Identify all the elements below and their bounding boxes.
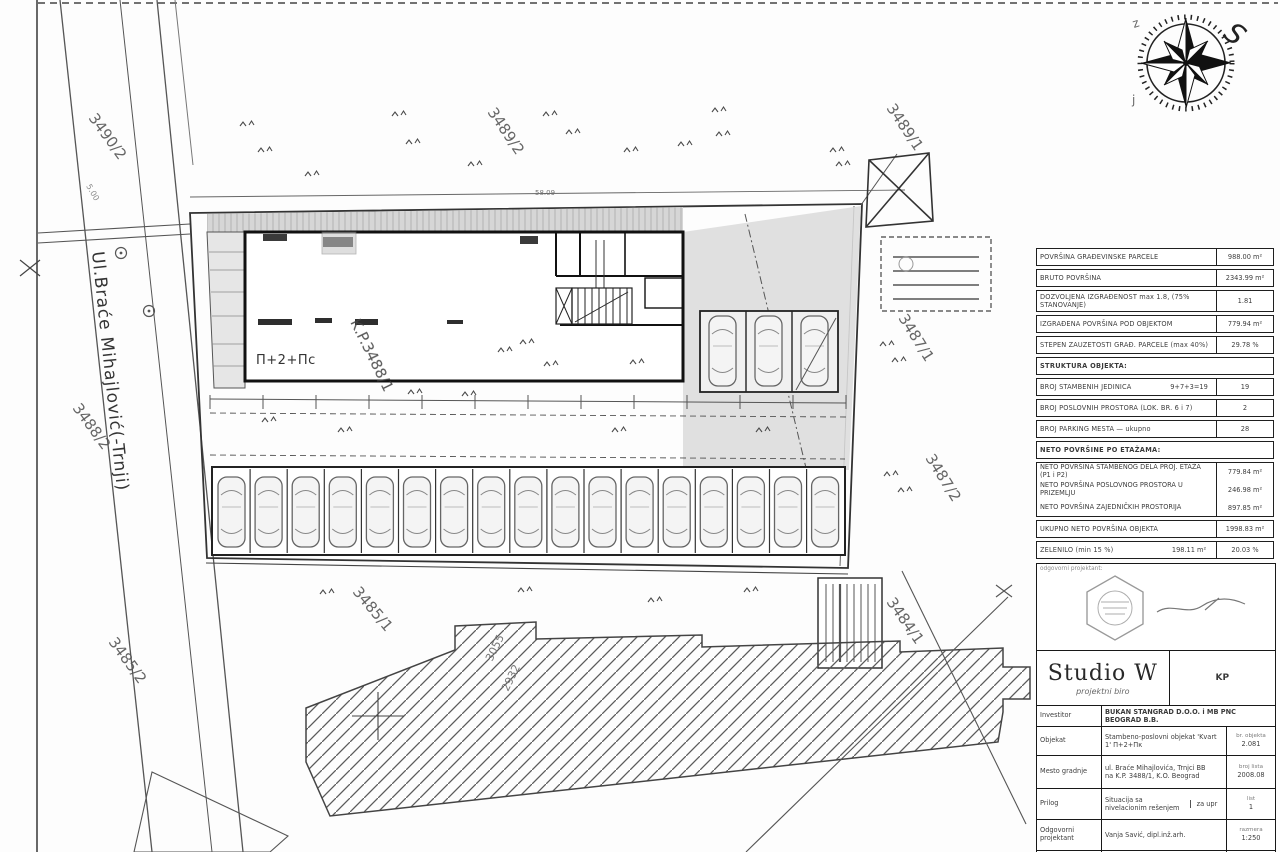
row-label: NETO POVRŠINA ZAJEDNIČKIH PROSTORIJA xyxy=(1037,499,1216,516)
existing-building: 3055 2932 xyxy=(306,622,1030,816)
row-value: 20.03 % xyxy=(1216,542,1273,558)
table-row: BROJ POSLOVNIH PROSTORA (LOK. BR. 6 i 7)… xyxy=(1036,399,1274,417)
grass-icon xyxy=(830,147,844,152)
table-row: IZGRAĐENA POVRŠINA POD OBJEKTOM 779.94 m… xyxy=(1036,315,1274,333)
location-line-2: na K.P. 3488/1, K.O. Beograd xyxy=(1105,772,1223,780)
table-row: BRUTO POVRŠINA 2343.99 m² xyxy=(1036,269,1274,287)
compass-rose: S z j xyxy=(1131,16,1252,109)
grass-icon xyxy=(880,341,894,346)
table-section-header: STRUKTURA OBJEKTA: xyxy=(1036,357,1274,375)
field-label: Investitor xyxy=(1037,706,1102,726)
table-row: NETO POVRŠINA POSLOVNOG PROSTORA U PRIZE… xyxy=(1037,481,1273,499)
row-detail: 9+7+3=19 xyxy=(1162,379,1216,395)
row-label: BROJ POSLOVNIH PROSTORA (LOK. BR. 6 i 7) xyxy=(1037,400,1216,416)
table-section-header: NETO POVRŠINE PO ETAŽAMA: xyxy=(1036,441,1274,459)
side-strip xyxy=(207,232,245,388)
row-value: 2343.99 m² xyxy=(1216,270,1273,286)
studio-row: Studio W projektni biro KP xyxy=(1037,650,1275,705)
studio-subtitle: projektni biro xyxy=(1076,687,1130,696)
row-label: IZGRAĐENA POVRŠINA POD OBJEKTOM xyxy=(1037,316,1216,332)
grass-icon xyxy=(898,487,912,492)
table-row: DOZVOLJENA IZGRAĐENOST max 1.8, (75% STA… xyxy=(1036,290,1274,312)
row-value: 779.84 m² xyxy=(1216,463,1273,481)
parking-car xyxy=(663,477,690,547)
parcel-label: 3485/1 xyxy=(349,583,397,635)
location-row: Mesto gradnje ul. Braće Mihajlovića, Trn… xyxy=(1037,755,1275,788)
info-key: razmera xyxy=(1239,827,1262,834)
parking-car xyxy=(737,477,764,547)
field-label: Prilog xyxy=(1037,789,1102,819)
row-value: 246.98 m² xyxy=(1216,481,1273,499)
drawing-line-2: nivelacionim rešenjem xyxy=(1105,804,1190,812)
parcel-label: 3489/2 xyxy=(484,104,528,158)
drawing-subcell: za upr xyxy=(1190,800,1223,808)
info-key: list xyxy=(1247,796,1255,803)
row-label: BROJ PARKING MESTA — ukupno xyxy=(1037,421,1216,437)
parking-car xyxy=(366,477,393,547)
field-info: list 1 xyxy=(1226,789,1275,819)
grass-icon xyxy=(712,107,726,112)
title-block: odgovorni projektant: Studio W projektni… xyxy=(1036,563,1276,852)
manhole-icon xyxy=(144,306,155,317)
row-value: 29.78 % xyxy=(1216,337,1273,353)
field-value: ul. Braće Mihajlovića, Trnjci BB na K.P.… xyxy=(1102,756,1226,788)
table-row: UKUPNO NETO POVRŠINA OBJEKTA 1998.83 m² xyxy=(1036,520,1274,538)
row-label: BROJ STAMBENIH JEDINICA xyxy=(1037,379,1162,395)
utility-box xyxy=(881,237,991,311)
field-value: BUKAN STANGRAD D.O.O. i MB PNC BEOGRAD B… xyxy=(1102,706,1275,726)
info-key: br. objekta xyxy=(1236,733,1266,740)
signature-icon xyxy=(1157,598,1245,612)
row-label: ZELENILO (min 15 %) xyxy=(1037,542,1162,558)
garage-car xyxy=(801,316,828,386)
street: Ul.Braće Mihajlović(-Trnji) 5.00 xyxy=(20,0,288,852)
field-info: br. objekta 2.081 xyxy=(1226,727,1275,755)
row-label: NETO POVRŠINE PO ETAŽAMA: xyxy=(1037,442,1273,458)
table-row-group: NETO POVRŠINA STAMBENOG DELA PROJ. ETAŽA… xyxy=(1036,462,1274,517)
table-row: BROJ STAMBENIH JEDINICA 9+7+3=19 19 xyxy=(1036,378,1274,396)
compass-south-label: j xyxy=(1131,93,1135,107)
grass-icon xyxy=(305,171,319,176)
canopy xyxy=(322,232,356,254)
row-value: 28 xyxy=(1216,421,1273,437)
info-key: broj lista xyxy=(1239,764,1263,771)
parcel-label: 3487/1 xyxy=(895,311,938,365)
table-row: BROJ PARKING MESTA — ukupno 28 xyxy=(1036,420,1274,438)
garage-car xyxy=(755,316,782,386)
parking-car xyxy=(218,477,245,547)
object-row: Objekat Stambeno-poslovni objekat 'Kvart… xyxy=(1037,726,1275,755)
grass-icon xyxy=(262,417,276,422)
field-value: Situacija sa nivelacionim rešenjem za up… xyxy=(1102,789,1226,819)
grass-icon xyxy=(678,141,692,146)
grass-icon xyxy=(468,161,482,166)
garage-stalls xyxy=(700,311,838,392)
row-label: UKUPNO NETO POVRŠINA OBJEKTA xyxy=(1037,521,1216,537)
row-value: 988.00 m² xyxy=(1216,249,1273,265)
parking-car xyxy=(589,477,616,547)
grass-icon xyxy=(892,357,906,362)
parcel-label: 3490/2 xyxy=(85,110,131,163)
quantities-table: POVRŠINA GRAĐEVINSKE PARCELE 988.00 m² B… xyxy=(1036,248,1274,562)
parking-car xyxy=(441,477,468,547)
table-row: STEPEN ZAUZETOSTI GRAĐ. PARCELE (max 40%… xyxy=(1036,336,1274,354)
grass-icon xyxy=(884,471,898,476)
parcel-label: 3485/2 xyxy=(105,634,151,687)
field-label: Mesto gradnje xyxy=(1037,756,1102,788)
parking-car xyxy=(812,477,839,547)
grass-icon xyxy=(338,427,352,432)
grass-icon xyxy=(716,131,730,136)
parking-car xyxy=(478,477,505,547)
row-label: STEPEN ZAUZETOSTI GRAĐ. PARCELE (max 40%… xyxy=(1037,337,1216,353)
field-info: razmera 1:250 xyxy=(1226,820,1275,850)
field-value: Vanja Savić, dipl.inž.arh. xyxy=(1102,820,1226,850)
compass-north-label: S xyxy=(1218,16,1252,53)
scribble-icon xyxy=(899,257,913,271)
grass-icon xyxy=(543,111,557,116)
grass-icon xyxy=(258,147,272,152)
grass-icon xyxy=(462,391,476,396)
top-dimension: 58.09 xyxy=(535,189,555,197)
grass-icon xyxy=(648,597,662,602)
grass-icon xyxy=(240,121,254,126)
row-value: 779.94 m² xyxy=(1216,316,1273,332)
entrance-mark xyxy=(263,234,287,241)
row-label: STRUKTURA OBJEKTA: xyxy=(1037,358,1273,374)
street-label: Ul.Braće Mihajlović(-Trnji) xyxy=(87,250,132,492)
field-label: Odgovorni projektant xyxy=(1037,820,1102,850)
parking-car xyxy=(329,477,356,547)
grass-icon xyxy=(566,129,580,134)
parking-car xyxy=(552,477,579,547)
grass-icon xyxy=(408,389,422,394)
building-storeys-label: П+2+Пс xyxy=(256,353,316,368)
entrance-mark xyxy=(520,236,538,244)
row-value: 2 xyxy=(1216,400,1273,416)
field-label: Objekat xyxy=(1037,727,1102,755)
row-label: BRUTO POVRŠINA xyxy=(1037,270,1216,286)
table-row: NETO POVRŠINA STAMBENOG DELA PROJ. ETAŽA… xyxy=(1037,463,1273,481)
info-value: 2008.08 xyxy=(1237,771,1264,780)
drawing-line-1: Situacija sa xyxy=(1105,796,1190,804)
parking-car xyxy=(700,477,727,547)
grass-icon xyxy=(612,427,626,432)
grass-icon xyxy=(406,139,420,144)
street-dimension: 5.00 xyxy=(84,183,101,203)
grass-icon xyxy=(518,587,532,592)
row-label: POVRŠINA GRAĐEVINSKE PARCELE xyxy=(1037,249,1216,265)
parking-car xyxy=(626,477,653,547)
parking-car xyxy=(292,477,319,547)
parcel-label: 3484/1 xyxy=(883,594,928,648)
grass-icon xyxy=(320,589,334,594)
parking-car xyxy=(404,477,431,547)
parking-car xyxy=(775,477,802,547)
row-label: DOZVOLJENA IZGRAĐENOST max 1.8, (75% STA… xyxy=(1037,291,1216,311)
studio-code: KP xyxy=(1169,651,1275,705)
row-label: NETO POVRŠINA POSLOVNOG PROSTORA U PRIZE… xyxy=(1037,481,1216,499)
studio-cell: Studio W projektni biro xyxy=(1037,651,1169,705)
location-line-1: ul. Braće Mihajlovića, Trnjci BB xyxy=(1105,764,1223,772)
grass-icon xyxy=(744,587,758,592)
field-info: broj lista 2008.08 xyxy=(1226,756,1275,788)
info-value: 2.081 xyxy=(1242,740,1261,749)
grass-icon xyxy=(836,161,850,166)
table-row: NETO POVRŠINA ZAJEDNIČKIH PROSTORIJA 897… xyxy=(1037,499,1273,516)
row-value: 1.81 xyxy=(1216,291,1273,311)
parcel-label: 3487/2 xyxy=(922,451,965,505)
row-detail: 198.11 m² xyxy=(1162,542,1216,558)
manhole-icon xyxy=(116,248,127,259)
row-value: 1998.83 m² xyxy=(1216,521,1273,537)
drawing-row: Prilog Situacija sa nivelacionim rešenje… xyxy=(1037,788,1275,819)
designer-row: Odgovorni projektant Vanja Savić, dipl.i… xyxy=(1037,819,1275,850)
field-value: Stambeno-poslovni objekat 'Kvart 1' П+2+… xyxy=(1102,727,1226,755)
site-plan-sheet: Ul.Braće Mihajlović(-Trnji) 5.00 58.09 xyxy=(0,0,1280,852)
stamp-icon xyxy=(1087,576,1143,640)
grass-icon xyxy=(392,111,406,116)
parking-car xyxy=(515,477,542,547)
row-value: 897.85 m² xyxy=(1216,499,1273,516)
building: П+2+Пс xyxy=(245,232,683,381)
table-row: ZELENILO (min 15 %) 198.11 m² 20.03 % xyxy=(1036,541,1274,559)
row-value: 19 xyxy=(1216,379,1273,395)
table-row: POVRŠINA GRAĐEVINSKE PARCELE 988.00 m² xyxy=(1036,248,1274,266)
info-value: 1:250 xyxy=(1241,834,1260,843)
stamp-area: odgovorni projektant: xyxy=(1037,564,1275,650)
row-label: NETO POVRŠINA STAMBENOG DELA PROJ. ETAŽA… xyxy=(1037,463,1216,481)
parking-row xyxy=(212,467,845,555)
stamp-and-signature xyxy=(1037,564,1273,648)
parcel-label: 3489/1 xyxy=(883,100,927,154)
stamp-note: odgovorni projektant: xyxy=(1040,566,1103,572)
compass-west-label: z xyxy=(1131,16,1141,31)
grass-icon xyxy=(624,147,638,152)
info-value: 1 xyxy=(1249,803,1253,812)
investor-row: Investitor BUKAN STANGRAD D.O.O. i MB PN… xyxy=(1037,705,1275,726)
parking-car xyxy=(255,477,282,547)
garage-car xyxy=(709,316,736,386)
studio-name: Studio W xyxy=(1048,661,1158,686)
